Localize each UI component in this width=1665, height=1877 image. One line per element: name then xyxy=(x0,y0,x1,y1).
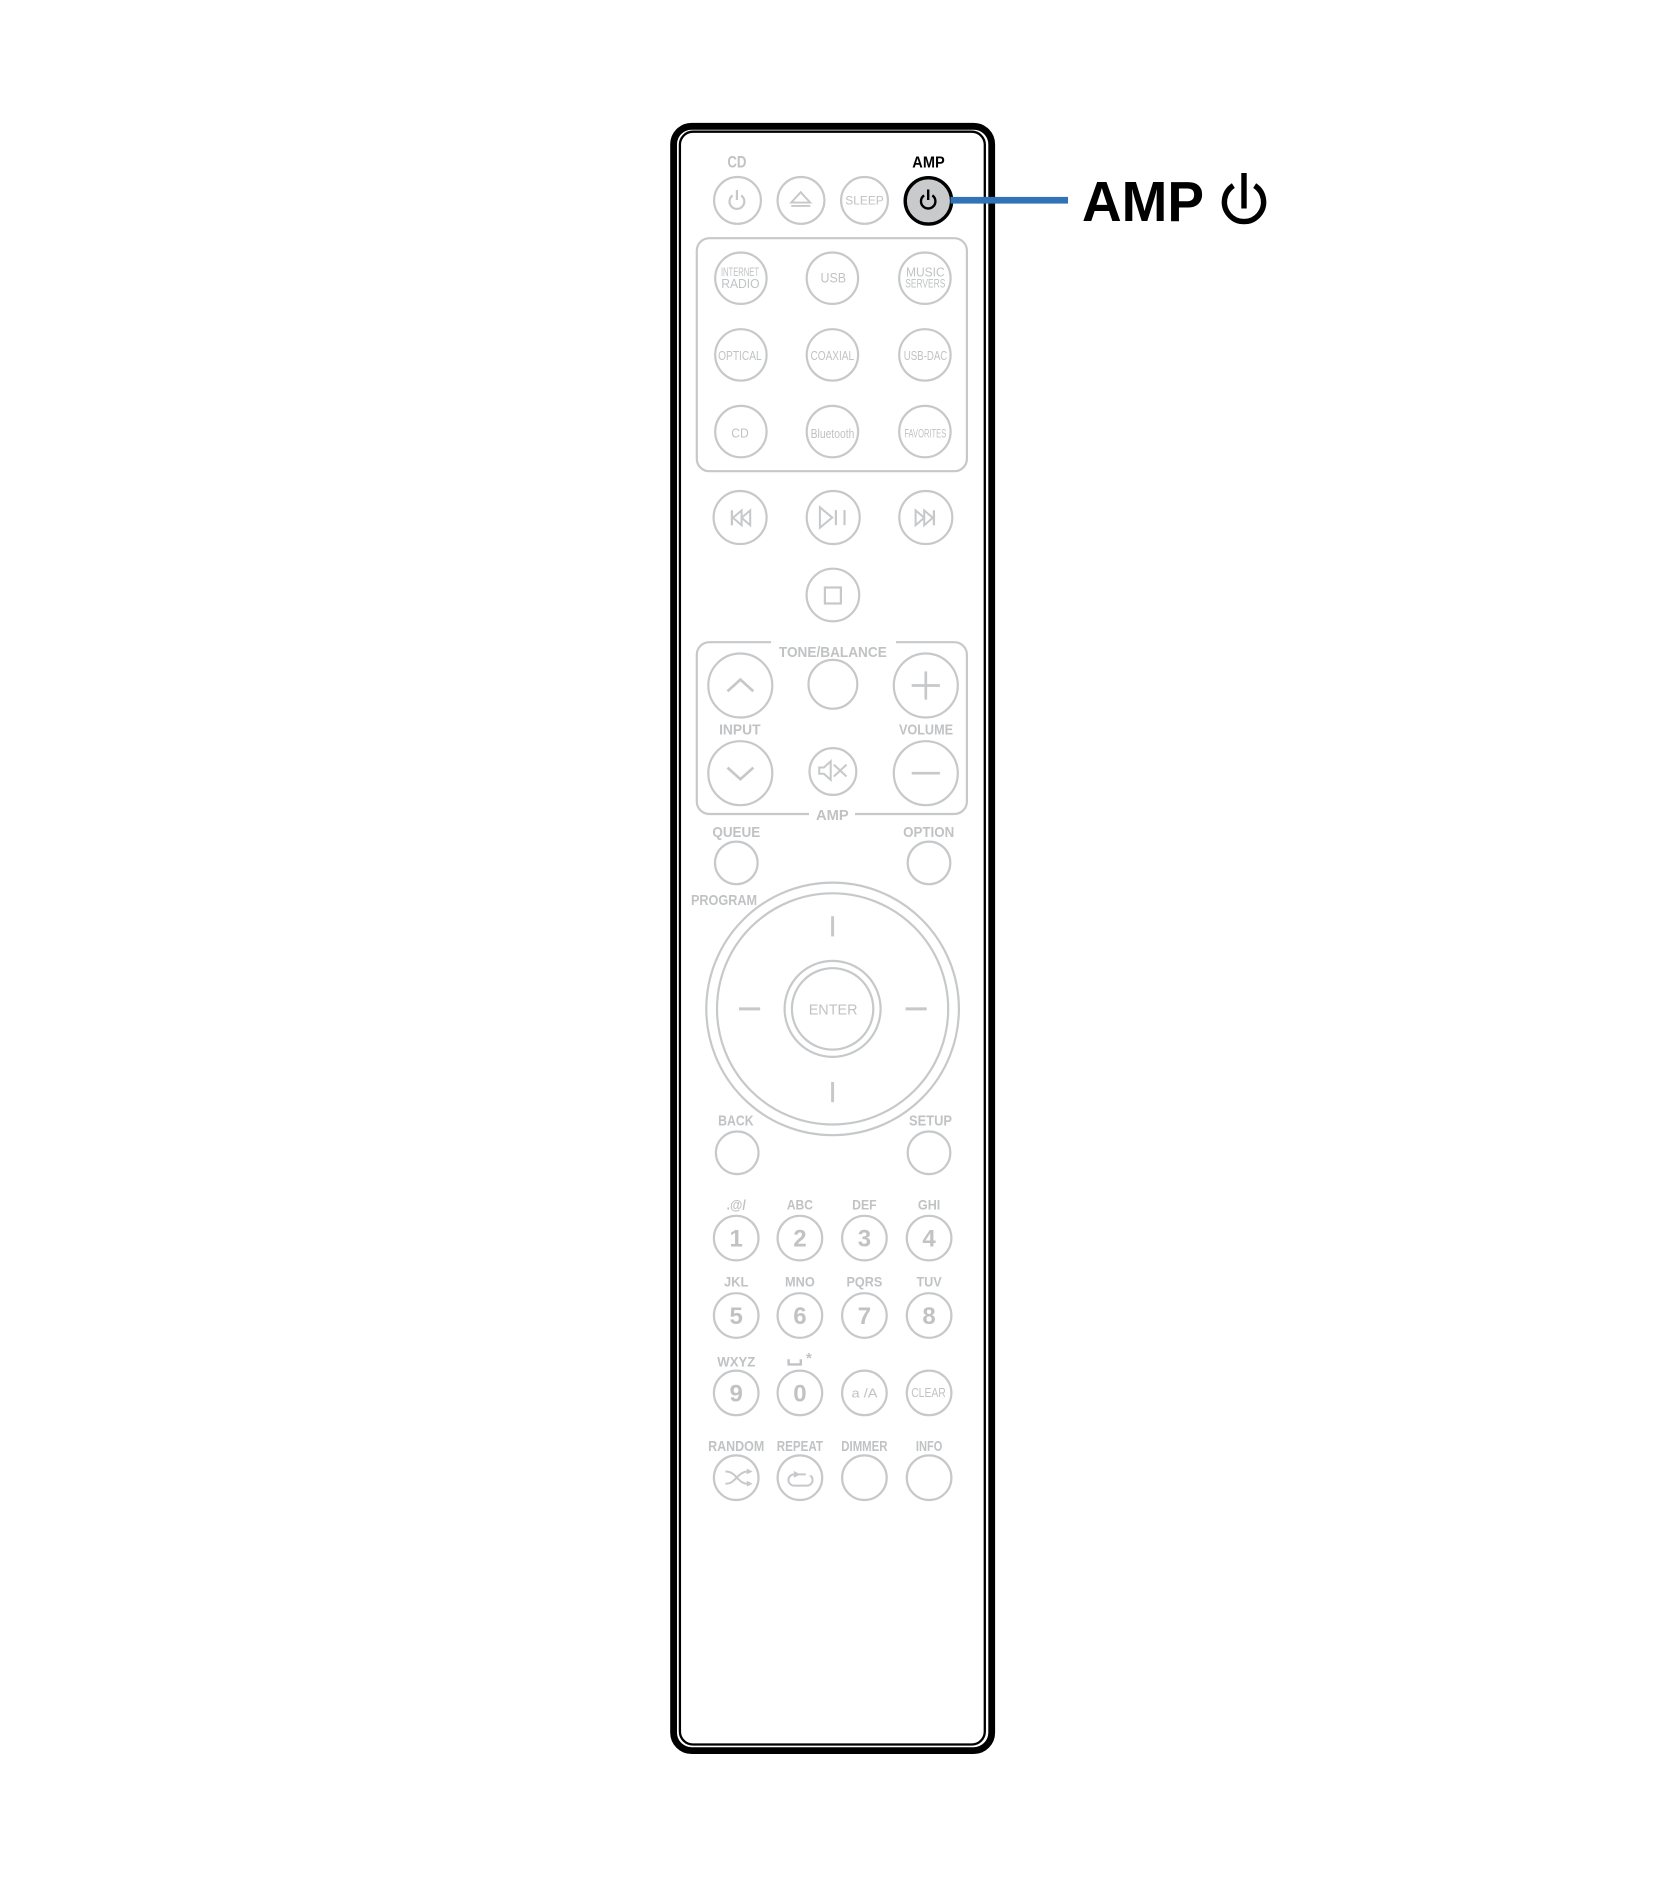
svg-text:.@/: .@/ xyxy=(727,1196,746,1212)
svg-text:SLEEP: SLEEP xyxy=(845,194,884,208)
svg-text:6: 6 xyxy=(793,1303,806,1330)
svg-text:DIMMER: DIMMER xyxy=(841,1438,887,1455)
svg-text:TONE/BALANCE: TONE/BALANCE xyxy=(779,644,887,661)
svg-text:REPEAT: REPEAT xyxy=(777,1438,823,1455)
svg-text:2: 2 xyxy=(793,1226,806,1253)
svg-text:OPTION: OPTION xyxy=(903,824,954,841)
svg-text:TUV: TUV xyxy=(916,1274,942,1290)
svg-text:8: 8 xyxy=(922,1303,935,1330)
svg-text:GHI: GHI xyxy=(918,1196,940,1212)
svg-text:9: 9 xyxy=(730,1380,743,1407)
svg-text:OPTICAL: OPTICAL xyxy=(718,348,762,363)
svg-text:0: 0 xyxy=(793,1380,806,1407)
svg-text:CLEAR: CLEAR xyxy=(911,1386,946,1400)
svg-text:SERVERS: SERVERS xyxy=(905,277,945,291)
svg-text:CD: CD xyxy=(731,426,749,441)
svg-text:4: 4 xyxy=(922,1226,936,1253)
svg-text:WXYZ: WXYZ xyxy=(717,1353,755,1369)
svg-text:RADIO: RADIO xyxy=(721,277,760,291)
svg-text:QUEUE: QUEUE xyxy=(712,824,760,841)
svg-text:PQRS: PQRS xyxy=(847,1274,883,1290)
svg-text:ENTER: ENTER xyxy=(809,1002,858,1019)
svg-text:1: 1 xyxy=(730,1226,743,1253)
svg-text:PROGRAM: PROGRAM xyxy=(691,892,757,909)
svg-text:a /A: a /A xyxy=(852,1386,878,1401)
svg-text:USB: USB xyxy=(821,271,847,286)
svg-text:VOLUME: VOLUME xyxy=(899,722,953,739)
svg-text:ABC: ABC xyxy=(787,1196,813,1212)
svg-text:*: * xyxy=(806,1350,812,1367)
svg-text:INPUT: INPUT xyxy=(719,722,760,739)
svg-text:7: 7 xyxy=(858,1303,871,1330)
svg-text:3: 3 xyxy=(858,1226,871,1253)
svg-text:AMP: AMP xyxy=(1082,170,1204,234)
svg-text:SETUP: SETUP xyxy=(909,1113,952,1130)
svg-text:RANDOM: RANDOM xyxy=(708,1438,764,1455)
svg-text:USB-DAC: USB-DAC xyxy=(904,348,948,363)
svg-text:Bluetooth: Bluetooth xyxy=(811,426,855,441)
svg-text:DEF: DEF xyxy=(852,1196,877,1212)
svg-text:BACK: BACK xyxy=(718,1113,754,1130)
svg-text:MNO: MNO xyxy=(785,1274,815,1290)
svg-text:FAVORITES: FAVORITES xyxy=(904,427,946,441)
svg-text:INFO: INFO xyxy=(916,1438,943,1455)
svg-text:COAXIAL: COAXIAL xyxy=(811,348,855,363)
svg-text:5: 5 xyxy=(730,1303,743,1330)
svg-text:AMP: AMP xyxy=(912,154,945,171)
svg-text:CD: CD xyxy=(727,153,746,172)
svg-text:JKL: JKL xyxy=(724,1274,749,1290)
svg-text:AMP: AMP xyxy=(816,807,849,824)
